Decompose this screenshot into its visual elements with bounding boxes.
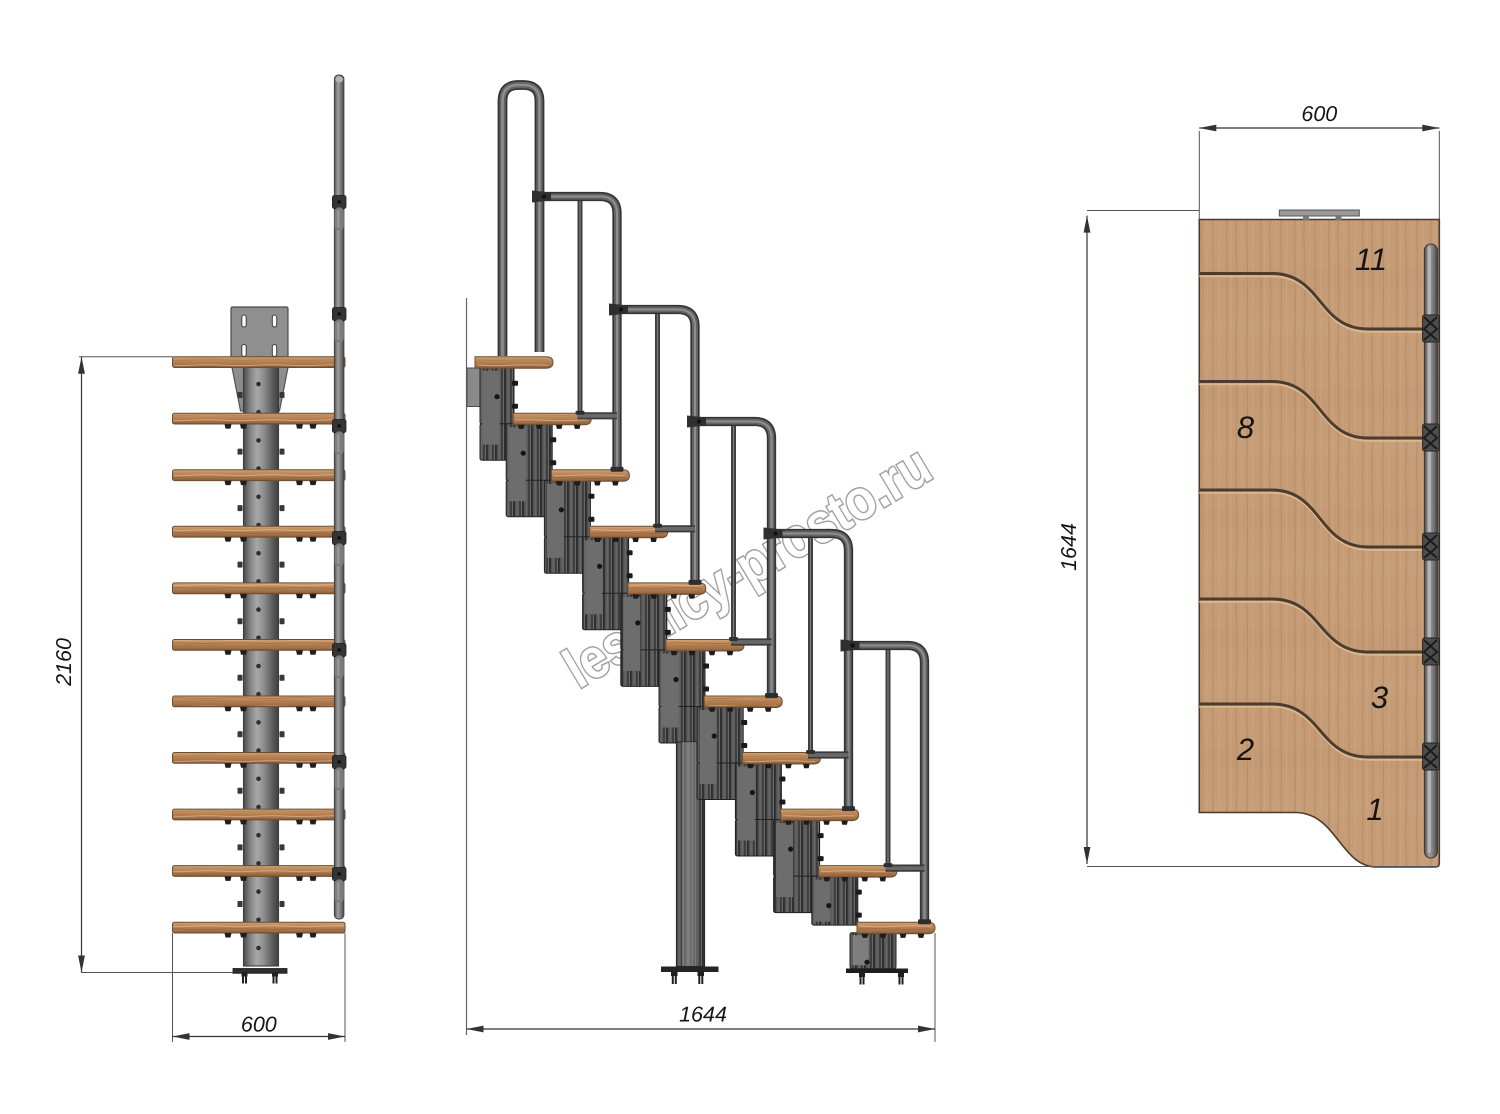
svg-text:1644: 1644	[1057, 523, 1081, 571]
svg-text:1: 1	[1366, 792, 1383, 827]
svg-text:3: 3	[1371, 680, 1388, 715]
svg-text:600: 600	[241, 1013, 277, 1037]
svg-text:8: 8	[1237, 410, 1255, 445]
svg-text:600: 600	[1301, 102, 1337, 126]
svg-text:1644: 1644	[679, 1003, 727, 1027]
svg-text:2160: 2160	[52, 638, 76, 687]
svg-text:2: 2	[1236, 732, 1254, 767]
svg-text:11: 11	[1355, 242, 1387, 277]
